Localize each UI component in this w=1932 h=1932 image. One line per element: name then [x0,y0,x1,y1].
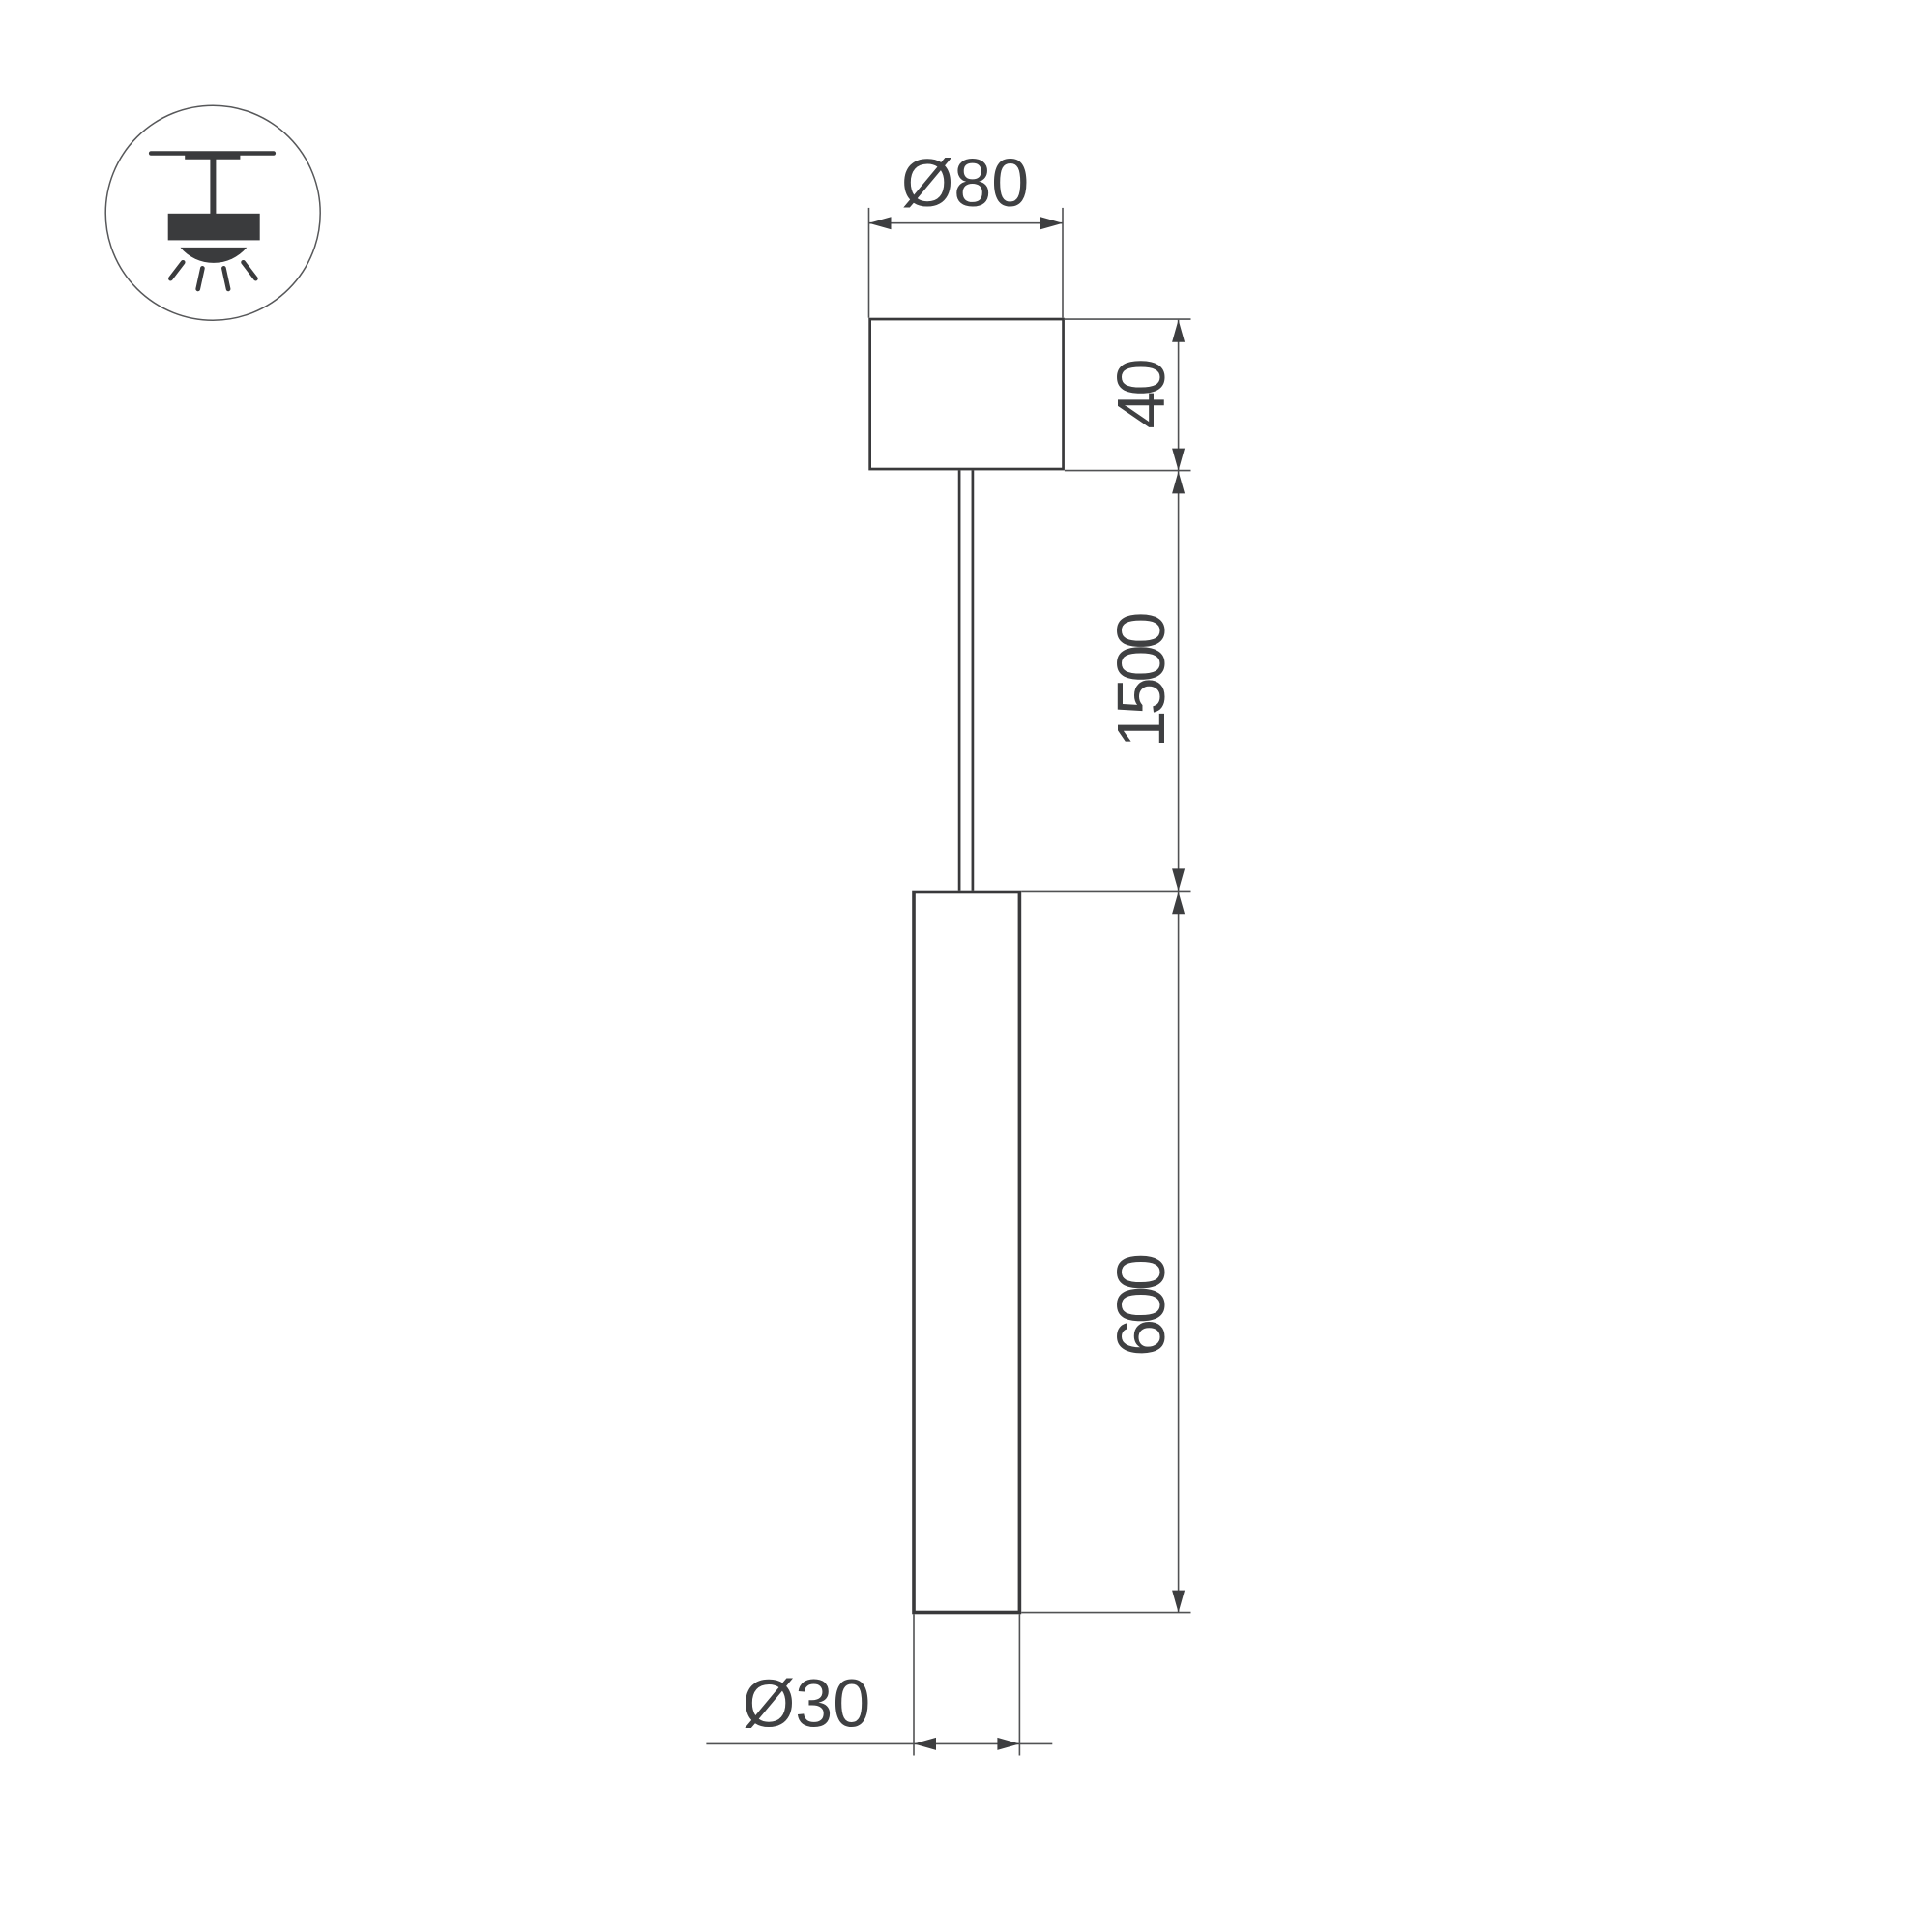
svg-text:Ø80: Ø80 [901,145,1029,220]
svg-text:600: 600 [1103,1255,1179,1357]
svg-text:Ø30: Ø30 [743,1666,870,1742]
svg-text:40: 40 [1103,361,1179,429]
svg-text:1500: 1500 [1103,614,1179,748]
